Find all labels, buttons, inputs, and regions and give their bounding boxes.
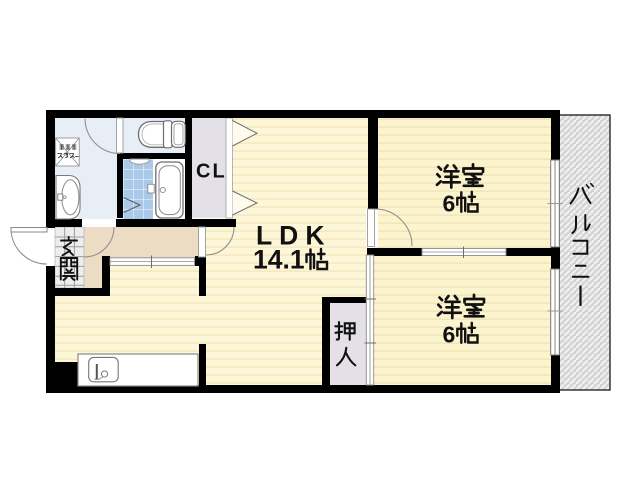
svg-text:6: 6 xyxy=(443,322,456,348)
svg-text:6: 6 xyxy=(443,191,456,217)
svg-text:CL: CL xyxy=(196,161,227,183)
svg-text:14.1: 14.1 xyxy=(253,245,305,275)
